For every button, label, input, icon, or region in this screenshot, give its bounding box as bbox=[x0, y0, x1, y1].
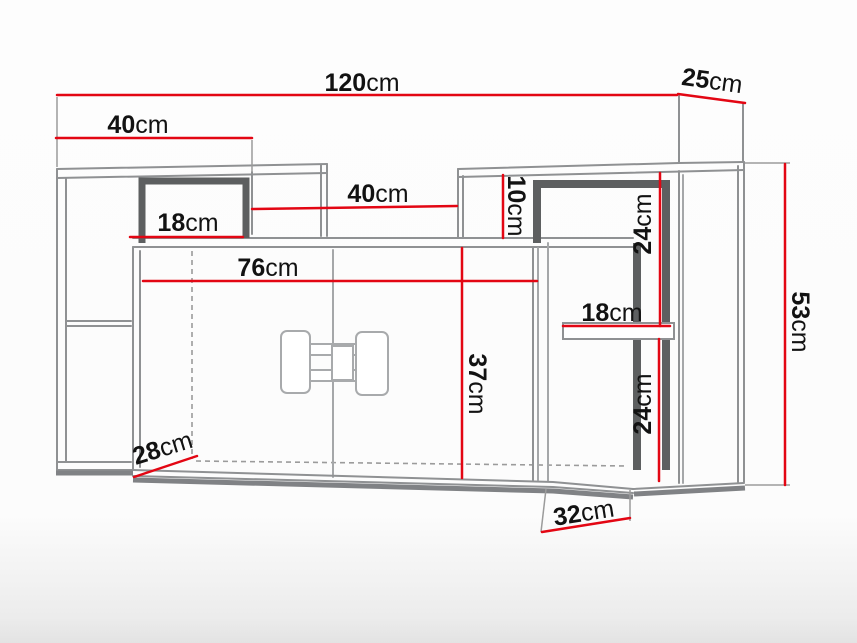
dim-label-top-depth: 25cm bbox=[680, 63, 744, 99]
dimension-labels: 120cm 25cm 40cm 40cm 18cm 76cm 37cm 10cm… bbox=[107, 63, 814, 532]
dim-label-middle-gap-width: 40cm bbox=[347, 180, 408, 208]
door-handle bbox=[281, 331, 388, 395]
dim-label-right-shelf-width: 18cm bbox=[581, 299, 642, 327]
hidden-edges bbox=[192, 251, 628, 466]
furniture-dimension-diagram: 120cm 25cm 40cm 40cm 18cm 76cm 37cm 10cm… bbox=[0, 0, 857, 643]
dim-label-right-upper-niche-height: 24cm bbox=[629, 193, 657, 254]
dimension-lines bbox=[56, 94, 785, 532]
dim-label-bottom-depth: 32cm bbox=[551, 494, 616, 531]
dim-label-total-height: 53cm bbox=[786, 291, 814, 352]
dim-label-left-niche-width: 18cm bbox=[157, 209, 218, 237]
dim-label-left-shelf-width: 40cm bbox=[107, 111, 168, 139]
dim-label-cabinet-inner-width: 76cm bbox=[237, 254, 298, 282]
dim-label-total-width: 120cm bbox=[324, 69, 399, 97]
dim-label-cabinet-inner-height: 37cm bbox=[463, 353, 491, 414]
diagram-canvas: 120cm 25cm 40cm 40cm 18cm 76cm 37cm 10cm… bbox=[0, 0, 857, 643]
dim-label-right-gap-height: 10cm bbox=[502, 175, 530, 236]
dim-label-right-lower-niche-height: 24cm bbox=[629, 373, 657, 434]
